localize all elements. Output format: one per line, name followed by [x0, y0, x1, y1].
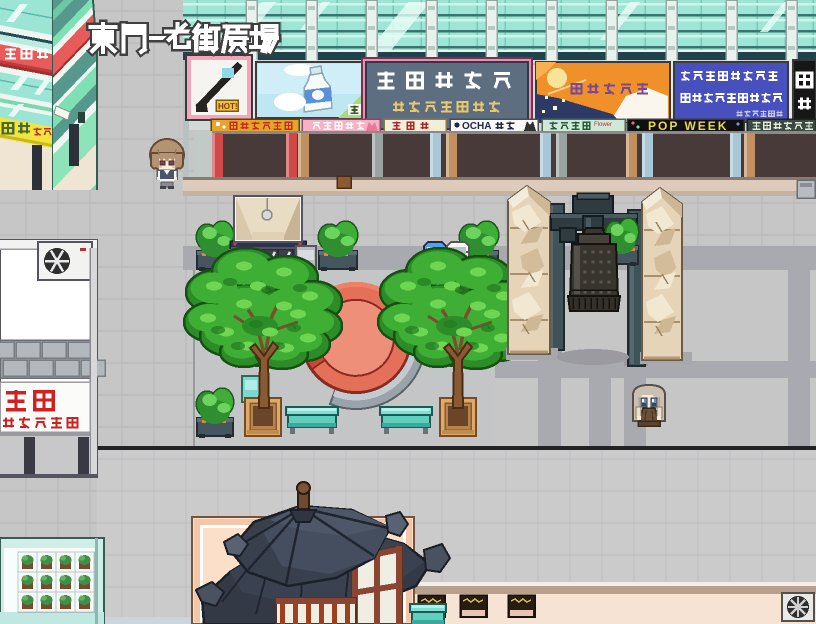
svg-text:HOT!: HOT!: [218, 102, 238, 111]
svg-text:POP WEEK: POP WEEK: [648, 119, 728, 133]
svg-text:OCHA: OCHA: [462, 121, 491, 132]
svg-text:Flower: Flower: [594, 122, 612, 128]
